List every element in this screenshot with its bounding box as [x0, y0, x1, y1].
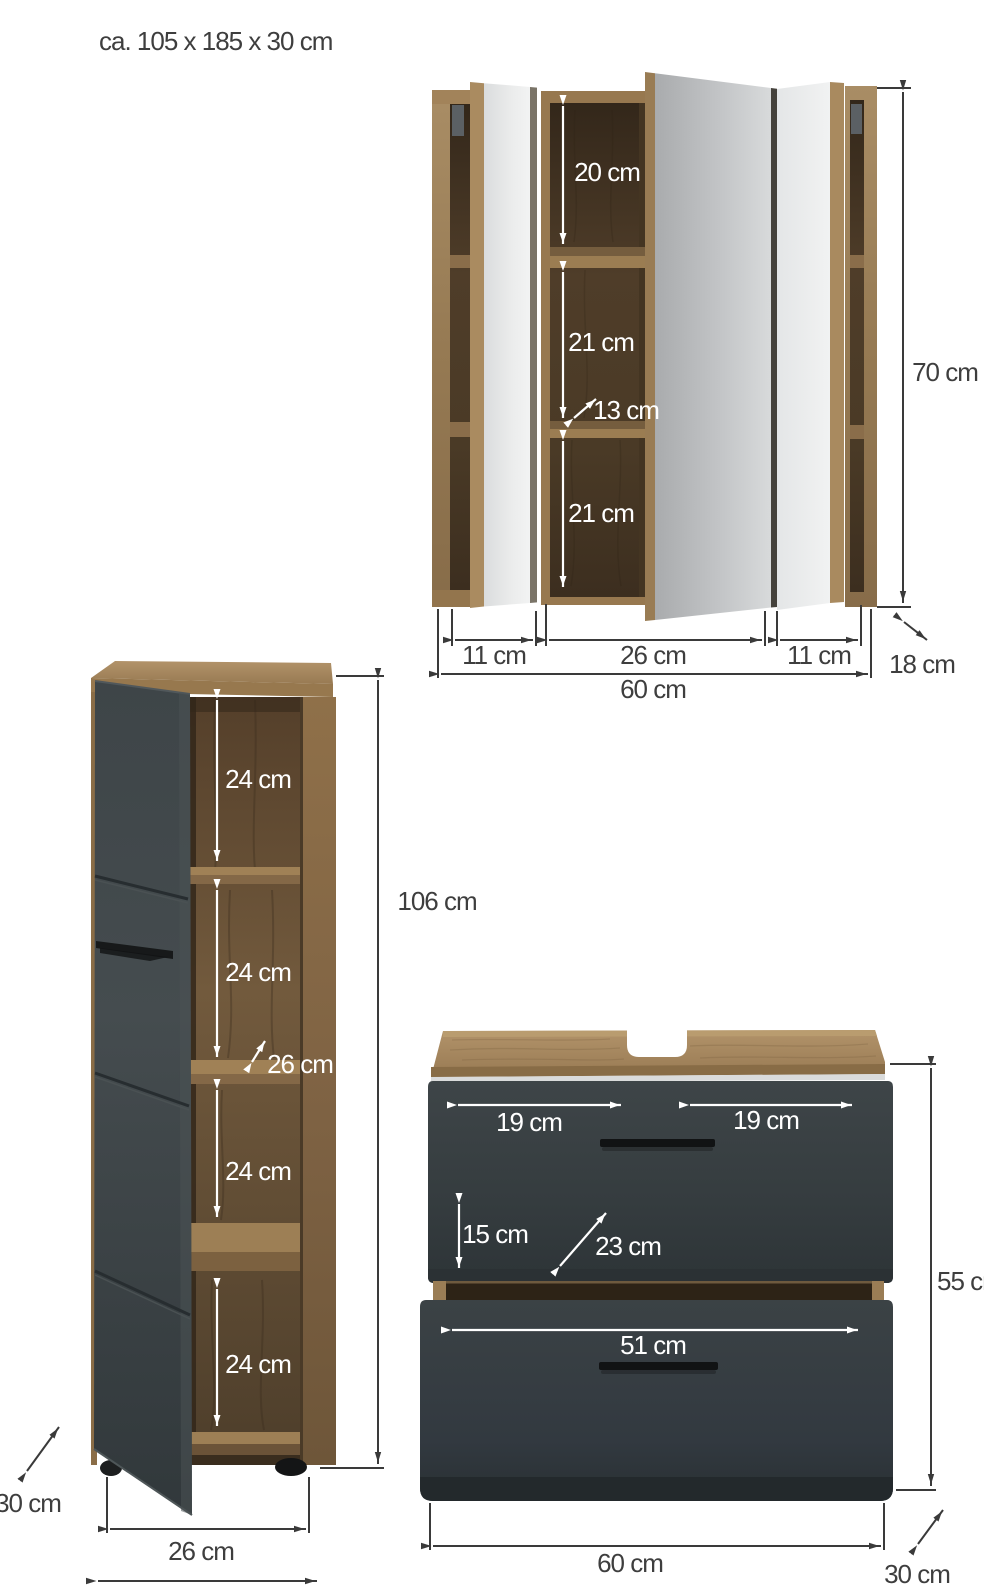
svg-text:24 cm: 24 cm	[225, 957, 291, 987]
svg-text:24 cm: 24 cm	[225, 1156, 291, 1186]
svg-text:60 cm: 60 cm	[620, 674, 686, 704]
svg-text:30 cm: 30 cm	[884, 1559, 950, 1589]
svg-text:13 cm: 13 cm	[593, 395, 659, 425]
svg-text:19 cm: 19 cm	[496, 1107, 562, 1137]
svg-text:24 cm: 24 cm	[225, 764, 291, 794]
svg-text:23 cm: 23 cm	[595, 1231, 661, 1261]
svg-text:51 cm: 51 cm	[620, 1330, 686, 1360]
svg-text:ca. 105 x 185 x 30 cm: ca. 105 x 185 x 30 cm	[99, 26, 332, 56]
svg-text:26 cm: 26 cm	[620, 640, 686, 670]
svg-text:15 cm: 15 cm	[462, 1219, 528, 1249]
svg-text:70 cm: 70 cm	[912, 357, 978, 387]
svg-text:21 cm: 21 cm	[568, 498, 634, 528]
svg-text:18 cm: 18 cm	[889, 649, 955, 679]
svg-text:11 cm: 11 cm	[462, 640, 526, 670]
svg-text:26 cm: 26 cm	[168, 1536, 234, 1566]
svg-text:106 cm: 106 cm	[397, 886, 476, 916]
svg-text:20 cm: 20 cm	[574, 157, 640, 187]
svg-text:30 cm: 30 cm	[0, 1488, 61, 1518]
svg-text:26 cm: 26 cm	[267, 1049, 333, 1079]
svg-text:21 cm: 21 cm	[568, 327, 634, 357]
svg-text:19 cm: 19 cm	[733, 1105, 799, 1135]
svg-text:55 cm: 55 cm	[937, 1266, 984, 1296]
svg-text:11 cm: 11 cm	[787, 640, 851, 670]
svg-text:60 cm: 60 cm	[597, 1548, 663, 1578]
svg-text:24 cm: 24 cm	[225, 1349, 291, 1379]
